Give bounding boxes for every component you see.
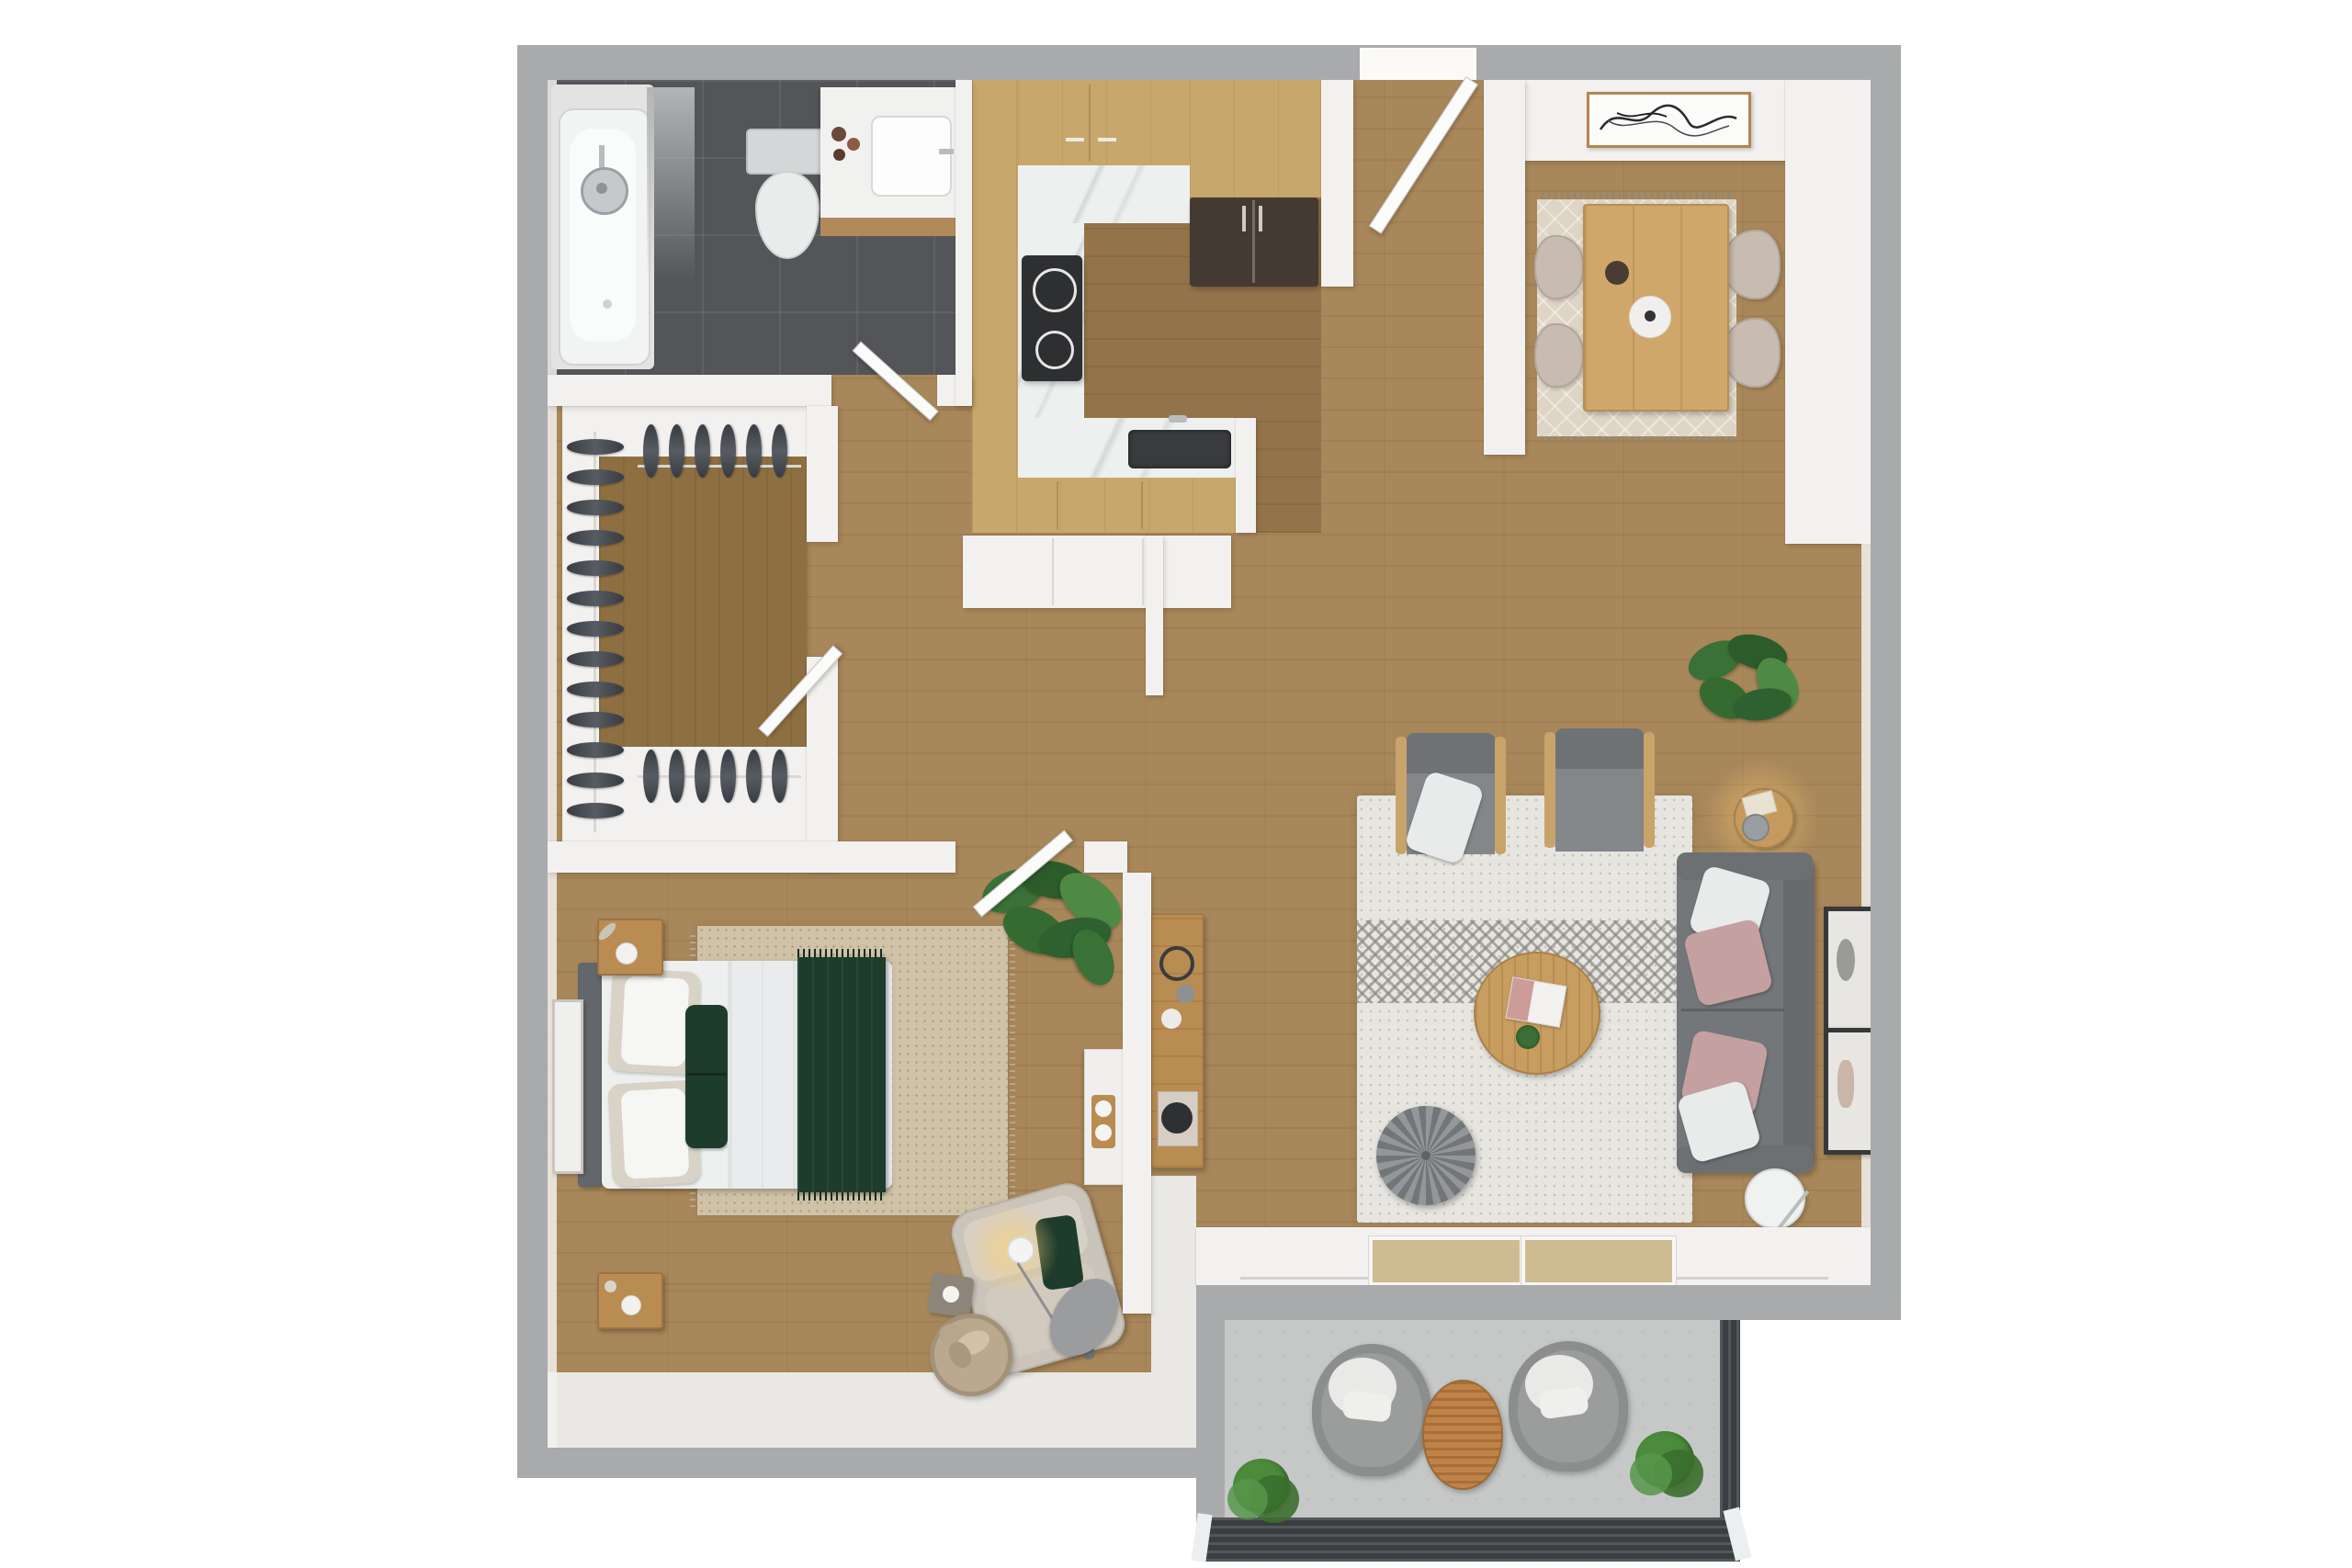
closet-floor <box>599 457 807 747</box>
dining-rug-fringe-top <box>1542 192 1732 199</box>
accent-chair-arm <box>1544 732 1555 848</box>
bed-pillow-white <box>621 1088 690 1179</box>
hanging-garment <box>772 750 787 803</box>
refrigerator-seam <box>1252 200 1255 283</box>
bedroom-rug-fringe <box>1010 931 1015 1207</box>
patio-table <box>1422 1380 1503 1490</box>
hanging-garment <box>746 750 762 803</box>
dining-right-wall-band <box>1785 80 1871 544</box>
refrigerator-handle <box>1259 206 1262 231</box>
kitchen-east-wall <box>1321 80 1353 287</box>
dining-chair <box>1724 230 1781 299</box>
hanging-garment <box>695 750 710 803</box>
hanging-garment <box>567 591 624 606</box>
countertop-marble-top <box>1018 165 1190 223</box>
dining-chair <box>1534 323 1584 388</box>
vanity-sink <box>871 116 952 197</box>
cabinet-handle <box>1098 138 1116 141</box>
sofa-back-cushions <box>1783 862 1815 1168</box>
console-bowl <box>1161 1102 1193 1134</box>
outer-wall-bottom-bedroom <box>517 1448 1196 1478</box>
dining-rug-fringe-bottom <box>1542 436 1732 444</box>
hanging-garment <box>567 469 624 485</box>
green-pillow-seam <box>687 1073 726 1076</box>
hanging-garment <box>643 424 659 478</box>
stove-burner-rear <box>1035 331 1074 369</box>
upper-cabinets-top <box>1018 80 1190 165</box>
bathroom-south-wall <box>548 375 831 406</box>
patio-chair-pillow <box>1342 1390 1393 1422</box>
table-vase <box>1605 261 1629 285</box>
table-lamp <box>1742 814 1770 841</box>
leaning-mirror <box>552 999 583 1174</box>
hall-living-wall-stub <box>1146 536 1163 695</box>
hanging-garment <box>567 773 624 788</box>
stool-candle <box>943 1286 959 1303</box>
hanging-garment <box>567 621 624 637</box>
vanity-decor-1 <box>831 127 846 141</box>
wall-art-scribble <box>1589 95 1748 145</box>
bed-throw-green <box>797 957 886 1192</box>
floor-lamp-shade <box>1745 1168 1805 1229</box>
cabinet-seam <box>1141 481 1143 529</box>
storage-closet <box>963 536 1231 608</box>
accent-chair-back <box>1555 728 1644 769</box>
vanity-wood-base <box>820 218 955 236</box>
wall-art-frame <box>1587 92 1751 148</box>
table-plate-dot <box>1645 310 1656 321</box>
sink-faucet <box>1169 415 1187 423</box>
arc-lamp-head <box>1007 1236 1035 1264</box>
stove-burner-front <box>1033 268 1077 312</box>
cabinet-seam <box>1057 481 1058 529</box>
desk-tray-dot <box>1095 1100 1112 1117</box>
toilet-tank <box>746 129 829 175</box>
dining-chair <box>1534 235 1584 299</box>
sliding-glass-panel <box>1369 1236 1523 1286</box>
counter-top-right <box>1190 80 1321 197</box>
hanging-garment <box>567 500 624 515</box>
hanging-garment <box>720 424 736 478</box>
console-decor-white <box>1161 1009 1182 1029</box>
sofa-seat-seam <box>1681 1009 1784 1011</box>
planter-bush <box>1630 1453 1672 1495</box>
counter-bottom-face <box>972 478 1236 533</box>
closet-east-wall-upper <box>807 406 838 542</box>
refrigerator-handle <box>1242 206 1246 231</box>
nightstand-cup <box>621 1295 641 1315</box>
outer-wall-top <box>517 45 1901 80</box>
storage-door-seam <box>1052 538 1054 605</box>
accent-chair-seat <box>1555 769 1644 852</box>
nightstand-flowers <box>605 1280 616 1292</box>
dining-chair <box>1724 318 1781 388</box>
shower-head-center <box>596 183 607 194</box>
sink-faucet <box>939 149 954 154</box>
console-decor-ring <box>1159 946 1194 981</box>
outer-wall-bottom-living <box>1196 1285 1901 1320</box>
outer-wall-left <box>517 45 548 1478</box>
entry-doorway-opening <box>1360 48 1476 80</box>
hanging-garment <box>746 424 762 478</box>
hanging-garment <box>669 424 684 478</box>
hanging-garment <box>720 750 736 803</box>
hanging-garment <box>567 803 624 818</box>
cabinet-handle <box>1066 138 1084 141</box>
wall-frame-art <box>1837 939 1855 981</box>
hanging-garment <box>567 651 624 667</box>
hanging-garment <box>567 560 624 576</box>
hanging-garment <box>567 712 624 728</box>
vanity-decor-2 <box>847 138 860 151</box>
pouf-button <box>1421 1151 1430 1160</box>
kitchen-sink <box>1128 430 1231 468</box>
wall-frame-art <box>1837 1060 1854 1108</box>
console-decor-gray <box>1176 985 1194 1003</box>
hanging-garment <box>567 682 624 697</box>
floor-strip-bedroom-bottom <box>548 1372 1196 1448</box>
accent-chair-arm <box>1396 737 1407 854</box>
bath-kitchen-divider-wall <box>955 80 972 406</box>
bedroom-living-partition <box>1123 873 1151 1314</box>
hanging-garment <box>643 750 659 803</box>
accent-chair-arm <box>1644 732 1655 848</box>
shower-curtain <box>647 87 695 282</box>
tub-drain <box>603 299 612 309</box>
balcony-railing-bottom <box>1204 1517 1740 1562</box>
storage-door-seam <box>1142 538 1144 605</box>
closet-east-wall-lower <box>807 657 838 871</box>
throw-fringe-top <box>797 949 886 957</box>
entry-dining-wall <box>1484 80 1525 455</box>
desk-tray-dot <box>1095 1124 1112 1141</box>
bed-pillow-white <box>621 976 690 1067</box>
accent-chair-back <box>1407 733 1495 773</box>
bedroom-north-wall-stub <box>1084 841 1127 873</box>
planter-bush <box>1227 1479 1268 1519</box>
cabinet-seam <box>1089 85 1091 162</box>
hanging-garment <box>772 424 787 478</box>
hanging-garment <box>669 750 684 803</box>
hanging-garment <box>695 424 710 478</box>
outer-wall-right <box>1871 45 1901 1320</box>
throw-fringe-bottom <box>797 1192 886 1201</box>
hanging-garment <box>567 742 624 758</box>
nightstand-dish <box>616 942 638 964</box>
floor-plan-canvas <box>0 0 2352 1568</box>
floor-strip-partition-right <box>1151 1176 1196 1374</box>
hanging-garment <box>567 530 624 546</box>
bedroom-north-wall <box>548 841 955 873</box>
coffee-table-plant <box>1516 1025 1540 1049</box>
hanging-garment <box>567 439 624 455</box>
sliding-glass-panel <box>1521 1236 1676 1286</box>
accent-chair-arm <box>1495 737 1506 854</box>
bed-accent-pillow-green <box>685 1005 728 1148</box>
vanity-decor-3 <box>833 149 845 161</box>
counter-end-panel <box>1236 418 1256 533</box>
counter-left-column <box>972 80 1018 533</box>
